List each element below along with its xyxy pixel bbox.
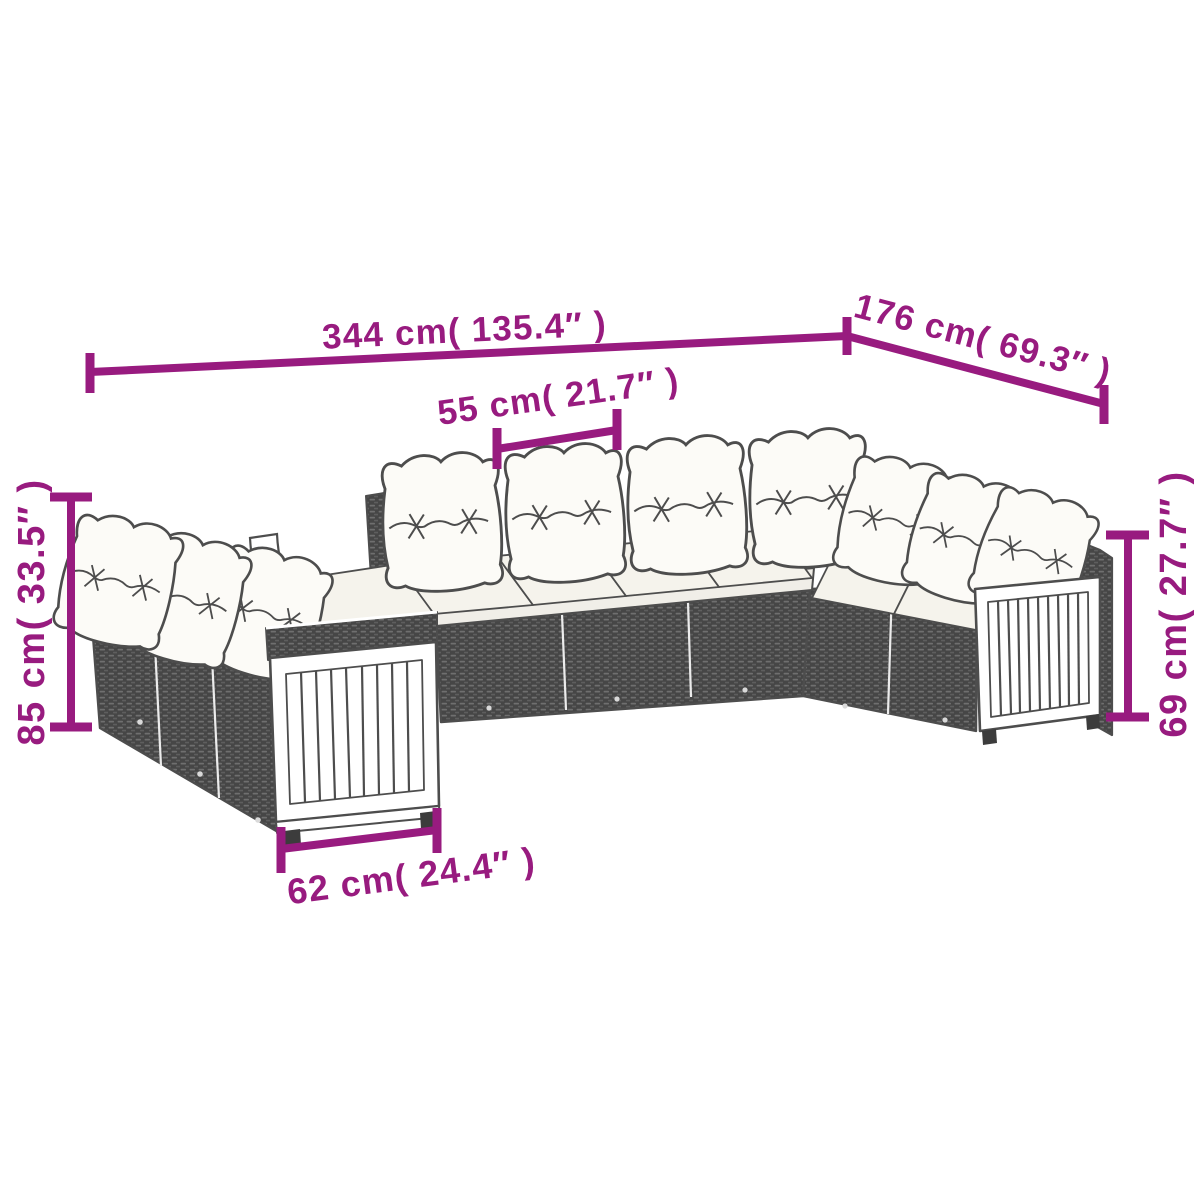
back-cushion <box>502 442 627 585</box>
sofa-dimension-diagram: 344 cm( 135.4″ ) 176 cm( 69.3″ ) 55 cm( … <box>0 0 1200 1200</box>
back-cushion <box>624 434 749 577</box>
left-arm-inner-frame <box>286 660 424 804</box>
right-arm-foot <box>1086 714 1100 730</box>
dim-label-back-height: 85 cm( 33.5″ ) <box>11 478 53 745</box>
dim-label-arm-height: 69 cm( 27.7″ ) <box>1153 470 1195 737</box>
left-arm-panel <box>266 612 440 847</box>
back-cushion <box>379 451 504 594</box>
right-arm-foot <box>982 729 997 745</box>
